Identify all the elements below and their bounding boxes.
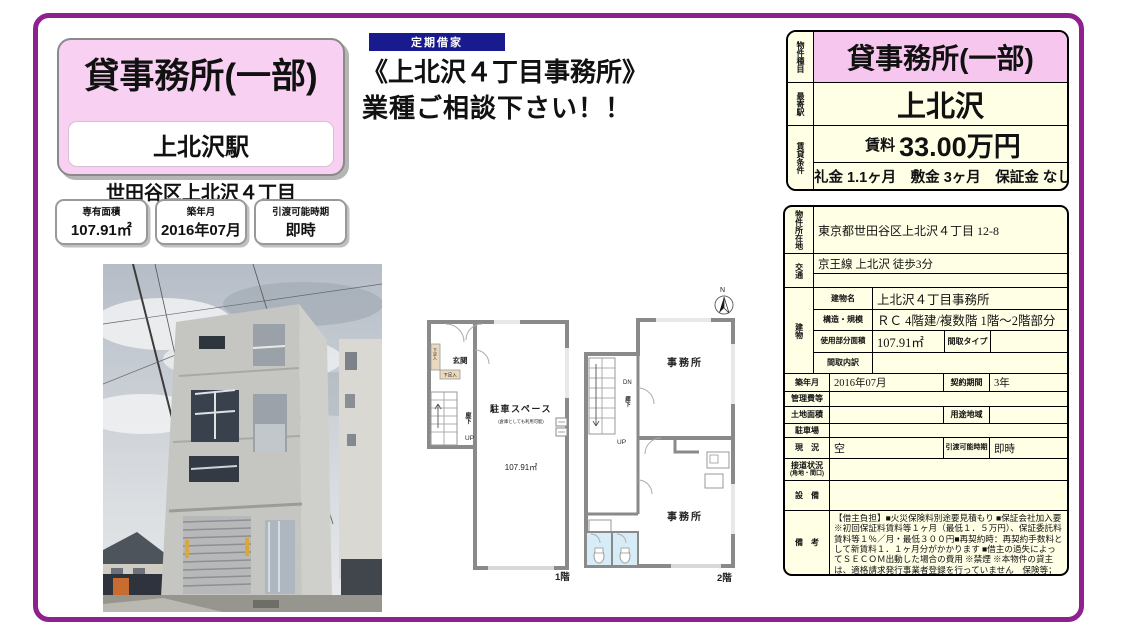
badge-handover-label: 引渡可能時期	[272, 204, 329, 218]
parking-label: 駐車場	[785, 424, 829, 437]
dn-label: DN	[623, 380, 632, 386]
detail-table: 物件所在地 東京都世田谷区上北沢４丁目 12-8 交通 京王線 上北沢 徒歩3分…	[783, 205, 1069, 576]
layout-type-label: 間取タイプ	[944, 331, 990, 352]
headline-name: 《上北沢４丁目事務所》	[362, 52, 648, 89]
north-label: N	[720, 287, 725, 294]
terms-label: 賃貸条件	[788, 126, 814, 189]
summary-table: 物件種目 貸事務所(一部) 最寄駅 上北沢 賃貸条件 賃料 33.00万円 礼金…	[786, 30, 1069, 191]
parking-note: (倉庫としても利用可能)	[498, 418, 544, 425]
station-name: 上北沢駅	[153, 127, 249, 162]
remarks-label: 備 考	[785, 511, 829, 574]
building-side	[299, 304, 332, 597]
summary-row-terms: 賃貸条件 賃料 33.00万円 礼金 1.1ヶ月 敷金 3ヶ月 保証金 なし	[788, 125, 1067, 189]
parking-value	[829, 424, 1067, 437]
contract-value: 3年	[989, 374, 1067, 391]
shoebox-label-1: 下足入	[433, 348, 438, 360]
up-label-2f: UP	[617, 439, 626, 446]
badge-built-label: 築年月	[187, 204, 216, 218]
remarks-value: 【借主負担】■火災保険料別途要見積もり ■保証会社加入要※初回保証料賃料等１ヶ月…	[829, 511, 1067, 574]
badge-built-value: 2016年07月	[161, 219, 241, 240]
building-photo	[103, 264, 382, 612]
access-value: 京王線 上北沢 徒歩3分	[814, 254, 1067, 273]
equipment-label: 設 備	[785, 481, 829, 510]
summary-row-type: 物件種目 貸事務所(一部)	[788, 32, 1067, 82]
zoning-value	[989, 407, 1067, 423]
entrance-label: 玄関	[453, 355, 468, 365]
row-built: 築年月 2016年07月 契約期間 3年	[785, 373, 1067, 391]
badge-area: 専有面積 107.91㎡	[55, 199, 148, 245]
row-location: 物件所在地 東京都世田谷区上北沢４丁目 12-8	[785, 207, 1067, 253]
office-label-lower: 事務所	[667, 510, 703, 523]
zoning-label: 用途地域	[943, 407, 989, 423]
spec-badges: 専有面積 107.91㎡ 築年月 2016年07月 引渡可能時期 即時	[55, 199, 347, 245]
corridor-label-2f: 廊下	[624, 395, 631, 409]
built-label: 築年月	[785, 374, 829, 391]
station-box: 上北沢駅	[68, 121, 334, 167]
handover-label: 引渡可能時期	[943, 438, 989, 458]
handover-value: 即時	[989, 438, 1067, 458]
rent-cell: 賃料 33.00万円	[814, 126, 1069, 162]
rent-value: 33.00万円	[899, 125, 1021, 164]
floor-label-2f: 2階	[717, 572, 732, 584]
badge-handover-value: 即時	[286, 219, 316, 240]
structure-label: 構造・規模	[814, 310, 872, 331]
flyer-page: 貸事務所(一部) 上北沢駅 世田谷区上北沢４丁目 専有面積 107.91㎡ 築年…	[0, 0, 1122, 634]
management-value	[829, 392, 1067, 406]
row-road: 接道状況 (角地・間口)	[785, 458, 1067, 480]
layout-breakdown-label: 間取内訳	[814, 353, 872, 374]
row-building: 建物 建物名 上北沢４丁目事務所 構造・規模 ＲＣ 4階建/複数階 1階～2階部…	[785, 287, 1067, 373]
floorplan-1f: 下足入 下足入 玄関 廊下 UP 駐車スペース (倉庫としても利用可能) 107…	[424, 308, 574, 584]
equipment-value	[829, 481, 1067, 510]
badge-area-value: 107.91㎡	[71, 219, 132, 240]
road-value	[829, 459, 1067, 480]
corridor-label-1f: 廊下	[464, 411, 471, 425]
parking-label: 駐車スペース	[490, 403, 552, 414]
north-compass-icon: N	[715, 287, 733, 314]
property-title-box: 貸事務所(一部) 上北沢駅	[57, 38, 345, 176]
land-label: 土地面積	[785, 407, 829, 423]
headline-message: 業種ご相談下さい！！	[362, 88, 632, 125]
badge-handover: 引渡可能時期 即時	[254, 199, 347, 245]
rent-label: 賃料	[865, 134, 895, 155]
station-label: 最寄駅	[788, 83, 814, 125]
neighbor-building-right	[339, 339, 382, 579]
floor-label-1f: 1階	[555, 571, 570, 583]
up-label-1f: UP	[465, 435, 474, 442]
land-value	[829, 407, 943, 423]
row-access: 交通 京王線 上北沢 徒歩3分	[785, 253, 1067, 287]
building-label: 建物	[785, 288, 813, 373]
used-area-label: 使用部分面積	[814, 331, 872, 352]
type-label: 物件種目	[788, 32, 814, 82]
row-parking: 駐車場	[785, 423, 1067, 437]
contract-label: 契約期間	[943, 374, 989, 391]
floorplan-2f: N DN 廊下 UP	[581, 284, 736, 588]
row-management: 管理費等	[785, 391, 1067, 406]
location-value: 東京都世田谷区上北沢４丁目 12-8	[813, 207, 1067, 253]
area-label-1f: 107.91㎡	[505, 463, 537, 472]
building-name-value: 上北沢４丁目事務所	[872, 288, 1067, 309]
row-status: 現 況 空 引渡可能時期 即時	[785, 437, 1067, 458]
road-label: 接道状況 (角地・間口)	[785, 459, 829, 480]
badge-built: 築年月 2016年07月	[155, 199, 248, 245]
fixed-term-lease-tag: 定期借家	[369, 33, 505, 51]
layout-type-value	[990, 331, 1067, 352]
parked-vehicle	[341, 559, 382, 601]
summary-row-station: 最寄駅 上北沢	[788, 82, 1067, 125]
row-remarks: 備 考 【借主負担】■火災保険料別途要見積もり ■保証会社加入要※初回保証料賃料…	[785, 510, 1067, 574]
building-name-label: 建物名	[814, 288, 872, 309]
location-label: 物件所在地	[785, 207, 813, 253]
built-value: 2016年07月	[829, 374, 943, 391]
station-value: 上北沢	[814, 83, 1067, 125]
status-label: 現 況	[785, 438, 829, 458]
layout-breakdown-value	[872, 353, 1067, 374]
badge-area-label: 専有面積	[82, 204, 120, 218]
property-title: 貸事務所(一部)	[59, 48, 343, 99]
row-equipment: 設 備	[785, 480, 1067, 510]
road-label-sub: (角地・間口)	[790, 471, 824, 478]
row-land: 土地面積 用途地域	[785, 406, 1067, 423]
access-value-2	[814, 273, 1067, 287]
type-value: 貸事務所(一部)	[814, 32, 1067, 82]
fees-cell: 礼金 1.1ヶ月 敷金 3ヶ月 保証金 なし	[814, 162, 1069, 189]
access-label: 交通	[785, 254, 813, 287]
road-label-main: 接道状況	[791, 461, 823, 470]
used-area-value: 107.91㎡	[872, 331, 944, 352]
structure-value: ＲＣ 4階建/複数階 1階～2階部分	[872, 310, 1067, 331]
management-label: 管理費等	[785, 392, 829, 406]
status-value: 空	[829, 438, 943, 458]
parking-room	[475, 322, 567, 568]
office-label-upper: 事務所	[667, 356, 703, 369]
